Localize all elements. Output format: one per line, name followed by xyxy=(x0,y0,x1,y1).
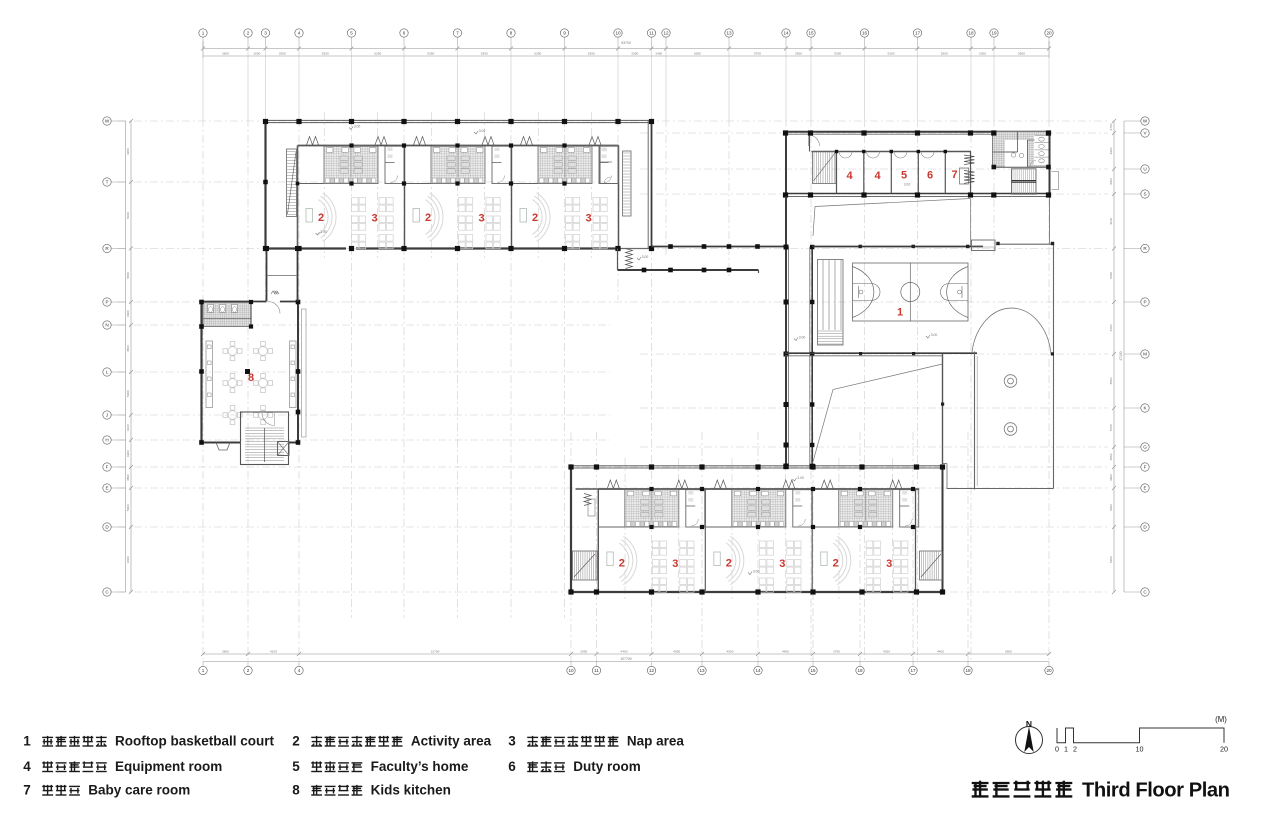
svg-text:9: 9 xyxy=(563,31,566,36)
svg-text:3000: 3000 xyxy=(1109,504,1113,511)
svg-text:T: T xyxy=(106,180,109,185)
svg-text:5300: 5300 xyxy=(888,51,895,55)
svg-text:7: 7 xyxy=(951,169,957,181)
svg-text:4400: 4400 xyxy=(621,650,628,654)
svg-text:1450: 1450 xyxy=(655,51,662,55)
svg-text:4: 4 xyxy=(298,31,301,36)
svg-text:E: E xyxy=(1143,486,1146,491)
svg-text:F: F xyxy=(106,465,109,470)
svg-text:N: N xyxy=(105,323,108,328)
svg-text:U: U xyxy=(1143,167,1146,172)
svg-text:5: 5 xyxy=(901,170,907,182)
svg-text:3: 3 xyxy=(371,213,377,225)
svg-text:107700: 107700 xyxy=(620,657,631,661)
svg-text:5350: 5350 xyxy=(941,51,948,55)
svg-text:2: 2 xyxy=(292,734,300,749)
svg-text:5300: 5300 xyxy=(1109,272,1113,279)
svg-text:5500: 5500 xyxy=(1018,51,1025,55)
svg-text:14: 14 xyxy=(783,31,789,36)
svg-text:17: 17 xyxy=(915,31,921,36)
svg-text:1: 1 xyxy=(1064,745,1068,754)
svg-text:3.00: 3.00 xyxy=(797,476,804,480)
svg-text:3: 3 xyxy=(478,213,484,225)
svg-text:2: 2 xyxy=(425,212,431,224)
svg-text:4250: 4250 xyxy=(883,650,890,654)
svg-text:H: H xyxy=(105,438,108,443)
svg-text:3: 3 xyxy=(508,734,516,749)
svg-text:W: W xyxy=(1143,119,1148,124)
svg-text:6300: 6300 xyxy=(694,51,701,55)
svg-text:4400: 4400 xyxy=(1109,324,1113,331)
svg-text:L: L xyxy=(106,370,109,375)
svg-text:5350: 5350 xyxy=(481,51,488,55)
svg-text:6: 6 xyxy=(403,31,406,36)
svg-text:Activity area: Activity area xyxy=(411,734,492,749)
svg-text:18: 18 xyxy=(965,668,971,673)
svg-text:6900: 6900 xyxy=(126,450,130,457)
svg-text:6100: 6100 xyxy=(126,424,130,431)
svg-text:6500: 6500 xyxy=(1005,650,1012,654)
svg-text:4: 4 xyxy=(23,759,31,774)
svg-text:N: N xyxy=(1026,719,1032,729)
svg-text:8: 8 xyxy=(248,372,254,384)
svg-text:(M): (M) xyxy=(1215,715,1227,724)
svg-text:Third Floor Plan: Third Floor Plan xyxy=(1082,780,1230,802)
svg-text:Equipment room: Equipment room xyxy=(115,759,222,774)
svg-text:5300: 5300 xyxy=(126,390,130,397)
svg-text:4: 4 xyxy=(846,170,853,182)
svg-text:3350: 3350 xyxy=(631,51,638,55)
svg-text:G: G xyxy=(1143,445,1147,450)
svg-text:15: 15 xyxy=(810,668,816,673)
svg-text:3600: 3600 xyxy=(222,650,229,654)
svg-text:2: 2 xyxy=(532,212,538,224)
svg-text:F: F xyxy=(1144,465,1147,470)
svg-text:3.00: 3.00 xyxy=(753,570,760,574)
svg-text:4: 4 xyxy=(874,170,881,182)
svg-text:4900: 4900 xyxy=(1109,147,1113,154)
svg-text:3.00: 3.00 xyxy=(320,230,327,234)
svg-text:2: 2 xyxy=(619,558,625,570)
svg-text:Duty room: Duty room xyxy=(573,759,641,774)
svg-text:5250: 5250 xyxy=(322,51,329,55)
svg-text:5350: 5350 xyxy=(588,51,595,55)
svg-text:14: 14 xyxy=(755,668,761,673)
svg-text:5000: 5000 xyxy=(126,212,130,219)
svg-text:Kids kitchen: Kids kitchen xyxy=(371,783,451,798)
svg-text:1500: 1500 xyxy=(253,51,260,55)
svg-text:3100: 3100 xyxy=(1109,218,1113,225)
svg-text:13: 13 xyxy=(726,31,732,36)
svg-text:2: 2 xyxy=(318,212,324,224)
svg-text:5200: 5200 xyxy=(1109,556,1113,563)
svg-text:4400: 4400 xyxy=(937,650,944,654)
svg-text:20: 20 xyxy=(1046,31,1052,36)
svg-text:2: 2 xyxy=(726,558,732,570)
svg-text:2: 2 xyxy=(247,668,250,673)
svg-text:S: S xyxy=(1143,192,1146,197)
svg-text:2: 2 xyxy=(1073,745,1077,754)
svg-text:M: M xyxy=(1143,352,1147,357)
svg-text:20: 20 xyxy=(1220,745,1228,754)
svg-text:W: W xyxy=(105,119,110,124)
svg-text:17: 17 xyxy=(910,668,916,673)
svg-text:2300: 2300 xyxy=(979,51,986,55)
svg-text:6600: 6600 xyxy=(126,310,130,317)
svg-text:11: 11 xyxy=(594,668,599,673)
svg-text:1: 1 xyxy=(202,31,205,36)
svg-text:4050: 4050 xyxy=(673,650,680,654)
svg-text:15: 15 xyxy=(808,31,814,36)
svg-text:4400: 4400 xyxy=(782,650,789,654)
svg-text:3500: 3500 xyxy=(1109,377,1113,384)
svg-text:16: 16 xyxy=(862,31,868,36)
svg-text:5250: 5250 xyxy=(374,51,381,55)
svg-text:3.00: 3.00 xyxy=(642,255,649,259)
svg-text:3.00: 3.00 xyxy=(354,125,361,129)
svg-text:4200: 4200 xyxy=(126,148,130,155)
svg-text:5700: 5700 xyxy=(1109,424,1113,431)
svg-text:3750: 3750 xyxy=(833,650,840,654)
svg-text:5350: 5350 xyxy=(427,51,434,55)
svg-text:3: 3 xyxy=(779,558,785,570)
svg-text:12: 12 xyxy=(649,668,655,673)
svg-text:13: 13 xyxy=(699,668,705,673)
svg-text:47100: 47100 xyxy=(1119,351,1123,360)
svg-text:6: 6 xyxy=(927,170,933,182)
svg-text:20: 20 xyxy=(1046,668,1052,673)
svg-text:1: 1 xyxy=(202,668,205,673)
svg-text:5350: 5350 xyxy=(534,51,541,55)
svg-text:3600: 3600 xyxy=(222,51,229,55)
svg-text:5800: 5800 xyxy=(126,272,130,279)
svg-text:3.00: 3.00 xyxy=(479,129,486,133)
svg-text:E: E xyxy=(105,486,108,491)
svg-text:1: 1 xyxy=(897,307,903,319)
svg-text:3: 3 xyxy=(886,558,892,570)
svg-text:21700: 21700 xyxy=(431,650,440,654)
svg-text:2050: 2050 xyxy=(580,650,587,654)
svg-text:Nap area: Nap area xyxy=(627,734,685,749)
svg-text:5350: 5350 xyxy=(834,51,841,55)
svg-text:5700: 5700 xyxy=(754,51,761,55)
svg-text:P: P xyxy=(1143,300,1146,305)
svg-text:J: J xyxy=(106,413,108,418)
svg-text:5: 5 xyxy=(350,31,353,36)
svg-text:3.00: 3.00 xyxy=(931,333,938,337)
svg-text:8: 8 xyxy=(510,31,513,36)
svg-text:4800: 4800 xyxy=(1109,453,1113,460)
svg-text:3.00: 3.00 xyxy=(799,336,806,340)
svg-text:P: P xyxy=(105,300,108,305)
svg-text:3: 3 xyxy=(672,558,678,570)
svg-text:10: 10 xyxy=(1136,745,1144,754)
svg-text:7: 7 xyxy=(456,31,459,36)
svg-text:7: 7 xyxy=(23,783,31,798)
svg-text:10: 10 xyxy=(568,668,574,673)
svg-text:16: 16 xyxy=(857,668,863,673)
svg-text:6: 6 xyxy=(508,759,516,774)
svg-text:4: 4 xyxy=(298,668,301,673)
svg-text:Baby care room: Baby care room xyxy=(88,783,190,798)
svg-text:12: 12 xyxy=(663,31,669,36)
svg-text:3900: 3900 xyxy=(1109,474,1113,481)
svg-text:6400: 6400 xyxy=(126,556,130,563)
svg-text:2: 2 xyxy=(247,31,250,36)
svg-text:11: 11 xyxy=(649,31,654,36)
svg-text:53700: 53700 xyxy=(621,41,631,45)
svg-text:2500: 2500 xyxy=(795,51,802,55)
svg-text:Faculty’s home: Faculty’s home xyxy=(371,759,469,774)
svg-text:3: 3 xyxy=(585,213,591,225)
svg-text:3350: 3350 xyxy=(279,51,286,55)
svg-text:4000: 4000 xyxy=(1109,178,1113,185)
svg-text:1: 1 xyxy=(23,734,31,749)
svg-text:5: 5 xyxy=(292,759,300,774)
svg-text:19: 19 xyxy=(991,31,997,36)
svg-text:3.00: 3.00 xyxy=(904,183,910,187)
svg-text:4100: 4100 xyxy=(270,650,277,654)
svg-text:3: 3 xyxy=(264,31,267,36)
svg-text:4800: 4800 xyxy=(126,474,130,481)
svg-text:4500: 4500 xyxy=(727,650,734,654)
svg-text:8: 8 xyxy=(292,783,300,798)
svg-text:2700: 2700 xyxy=(1109,123,1113,130)
svg-text:2: 2 xyxy=(833,558,839,570)
svg-text:5600: 5600 xyxy=(126,504,130,511)
svg-text:0: 0 xyxy=(1055,745,1059,754)
svg-text:Rooftop basketball court: Rooftop basketball court xyxy=(115,734,275,749)
svg-text:10: 10 xyxy=(615,31,621,36)
svg-text:18: 18 xyxy=(968,31,974,36)
svg-text:4500: 4500 xyxy=(126,345,130,352)
